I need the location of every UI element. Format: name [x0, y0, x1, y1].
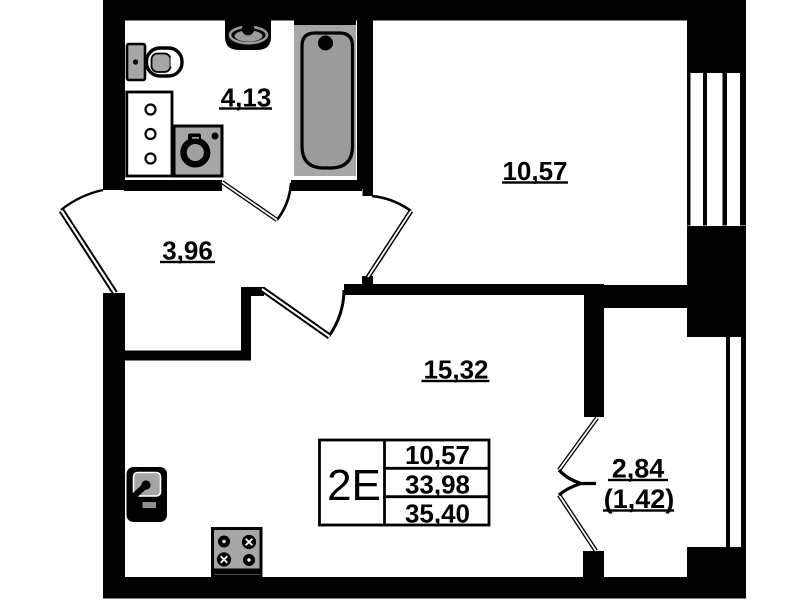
svg-text:2Е: 2Е — [327, 461, 381, 510]
svg-text:33,98: 33,98 — [405, 470, 470, 500]
svg-text:10,57: 10,57 — [405, 440, 470, 470]
svg-text:35,40: 35,40 — [405, 498, 470, 528]
